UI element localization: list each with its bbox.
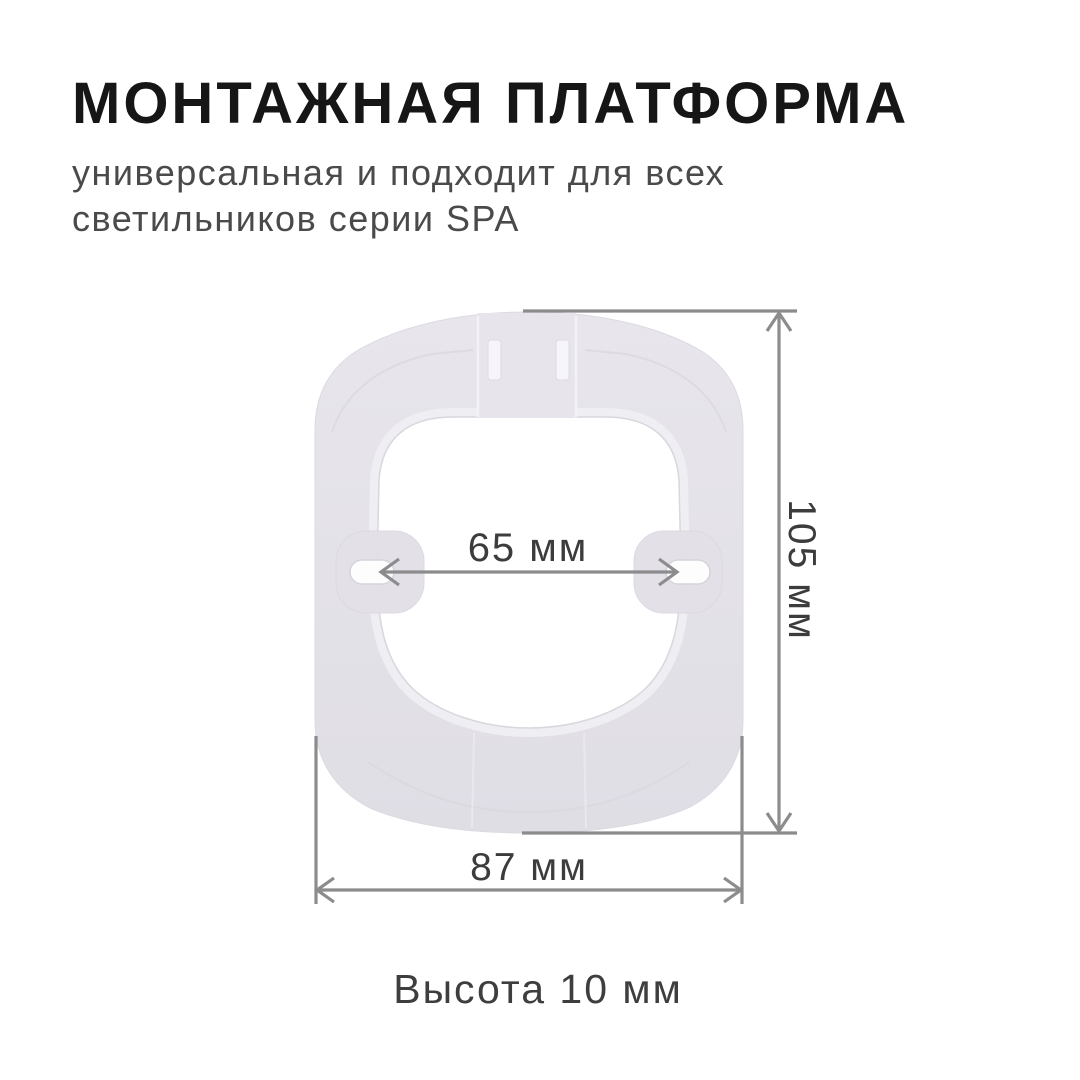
- tab-slot-right: [556, 340, 569, 380]
- dimension-label-105mm: 105 мм: [779, 499, 823, 641]
- dimension-label-65mm: 65 мм: [428, 526, 628, 571]
- dimension-label-87mm: 87 мм: [429, 846, 629, 890]
- tab-slot-left: [488, 340, 501, 380]
- height-note: Высота 10 мм: [338, 966, 738, 1013]
